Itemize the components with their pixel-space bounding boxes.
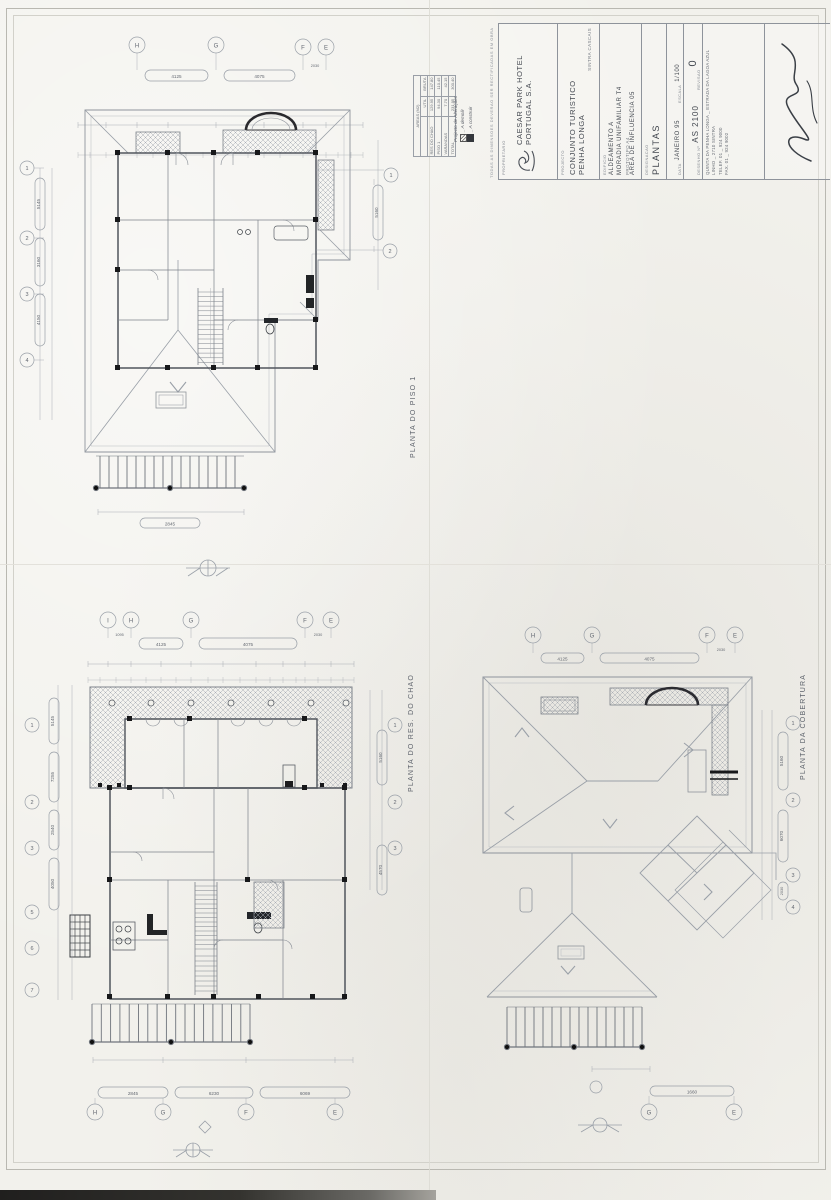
caesar-park-logo-icon [512,149,536,175]
grid-right [370,690,402,895]
grid-bubbles-top [129,37,334,70]
scan-edge-artifact [0,1190,436,1200]
staircase [198,288,223,365]
date-label: DATA [677,163,682,175]
title-block-meta: DATA JANEIRO 95 ESCALA 1/100 DESENHO Nº … [667,24,703,179]
kitchen-service-fixtures [70,912,271,957]
pergola [89,1004,252,1045]
svg-text:1: 1 [30,723,33,729]
areas-col-util: UTIL [421,97,428,117]
building-line2: MORADIA UNIFAMILIAR T4 [617,28,625,175]
svg-text:6070: 6070 [779,830,784,841]
svg-text:5: 5 [30,910,33,916]
terrace-hatch [90,687,352,788]
revision-label: REVISAO [696,69,701,90]
owner-label: PROPRIETARIO [501,28,506,175]
svg-text:E: E [733,634,737,640]
svg-text:4075: 4075 [243,642,254,647]
svg-text:7: 7 [30,988,33,994]
address-line4: FAX. 01 _ 924 9002 [724,28,730,175]
svg-text:H: H [531,634,535,640]
areas-col-bruta: BRUTA [421,76,428,97]
build-solid-icon [467,134,474,142]
svg-text:2: 2 [388,249,391,255]
table-row: RES DO CHAO 129.95 147.80 [428,76,435,157]
areas-col-spacer [421,117,428,157]
svg-text:I: I [107,619,109,625]
svg-text:H: H [135,44,139,50]
grid-bubbles-bottom [641,1096,742,1120]
owner-line1: CAESAR PARK HOTEL [515,55,524,145]
columns [107,716,347,999]
project-sub: SINTRA CASCAIS [587,28,592,175]
pergola [504,1007,644,1050]
svg-text:1: 1 [393,723,396,729]
title-block-project: PROJECTO CONJUNTO TURISTICO PENHA LONGA … [558,24,600,179]
svg-text:2: 2 [393,800,396,806]
dimension-bottom: 2845 6230 6069 [93,1057,353,1098]
building-walls [118,153,316,368]
designation-value: PLANTAS [651,28,662,175]
building-walls [110,719,345,999]
roof-details [520,750,738,912]
dimension-pills-top: 4125 4075 2030 [145,64,319,81]
svg-text:4: 4 [791,905,794,911]
svg-text:3: 3 [393,846,396,852]
dimension-bottom: 1660 [590,1066,734,1096]
svg-text:3: 3 [30,846,33,852]
grid-left [25,685,72,1000]
door-swings [148,153,294,330]
pergola [93,456,246,491]
project-line2: PENHA LONGA [577,28,586,175]
svg-text:2030: 2030 [780,887,784,895]
svg-text:5145: 5145 [50,715,55,726]
svg-text:F: F [301,46,305,52]
patio-hatch [254,882,284,928]
drawing-number-label: DESENHO Nº [696,146,701,175]
svg-text:4075: 4075 [254,74,265,79]
svg-text:2030: 2030 [717,648,725,652]
svg-text:5145: 5145 [36,198,41,209]
svg-text:G: G [590,634,595,640]
title-block-designation: DESIGNACAO PLANTAS [642,24,667,179]
title-block-address: QUINTA DA PENHA LONGA _ ESTRADA DA LAGOA… [703,24,765,179]
floor-plan-res-do-chao: I H G F E 1095 4125 4075 2030 [18,590,428,1165]
plan-title-cobertura: PLANTA DA COBERTURA [800,674,807,780]
date-value: JANEIRO 95 [675,120,683,160]
title-block-signature [765,24,830,179]
demolish-hatch-icon [460,134,467,142]
designation-label: DESIGNACAO [644,28,649,175]
svg-text:G: G [189,619,194,625]
building-line4: AREA DE INFLUENCIA 05 [630,28,638,175]
svg-text:H: H [93,1111,97,1117]
alterations-title: Projecto de Alterações [452,84,459,142]
svg-text:E: E [333,1111,337,1117]
building-label: EDIFICIO [602,28,607,175]
svg-text:4: 4 [25,358,28,364]
svg-text:3160: 3160 [36,256,41,267]
svg-text:F: F [705,634,709,640]
disclaimer-note: TODAS AS DIMENSOES DEVERAO SER RECTIFICA… [489,27,494,178]
svg-text:2845: 2845 [165,522,176,527]
building-line1: ALDEAMENTO A [609,28,617,175]
project-line1: CONJUNTO TURISTICO [568,28,577,175]
svg-text:G: G [214,44,219,50]
svg-text:E: E [324,46,328,52]
svg-text:7255: 7255 [50,771,55,782]
datum-markers [173,1121,213,1157]
owner-line2: PORTUGAL S.A. [524,55,533,145]
legend-build: _ A construir [468,107,473,132]
grid-bubbles-top [100,612,339,638]
svg-text:1: 1 [25,166,28,172]
plan-title-piso1: PLANTA DO PISO 1 [410,376,417,458]
roof-plan-cobertura: H G F E 4125 4075 2030 [460,620,820,1140]
title-block-owner: PROPRIETARIO CAESAR PARK HOTEL PORTUGAL … [498,24,558,179]
svg-text:4570: 4570 [378,864,383,875]
floor-plan-piso1: H G F E 4125 4075 2030 1 2 3 4 [18,20,418,580]
svg-text:F: F [244,1111,248,1117]
scale-label: ESCALA [677,85,682,103]
svg-text:F: F [303,619,307,625]
chimney [156,392,186,408]
dimension-pills-top: 1095 4125 4075 2030 [115,633,322,649]
svg-text:1: 1 [791,721,794,727]
fold-crease-vertical [429,0,430,1200]
slope-arrows [505,728,712,974]
revision-value: 0 [687,60,701,67]
grid-bubbles-bottom [87,1098,343,1120]
svg-text:5160: 5160 [779,755,784,766]
title-block-building: EDIFICIO ALDEAMENTO A MORADIA UNIFAMILIA… [600,24,642,179]
signature [767,28,825,175]
scanned-drawing-sheet: H G F E 4125 4075 2030 1 2 3 4 [0,0,831,1200]
svg-text:6: 6 [30,946,33,952]
svg-text:2540: 2540 [50,824,55,835]
balcony-hatch-areas [136,130,334,230]
svg-text:2845: 2845 [128,1091,139,1096]
svg-text:4150: 4150 [36,314,41,325]
svg-text:G: G [647,1111,652,1117]
plan-title-res-do-chao: PLANTA DO RES. DO CHAO [408,674,415,792]
svg-text:4125: 4125 [171,74,182,79]
svg-text:1660: 1660 [687,1090,698,1095]
columns [115,150,318,370]
roof-lower-pyramid [487,853,657,997]
svg-text:5160: 5160 [378,752,383,763]
svg-text:1: 1 [389,173,392,179]
svg-text:2: 2 [791,798,794,804]
grid-bubbles-top [525,627,743,653]
svg-text:4125: 4125 [156,642,167,647]
svg-text:2: 2 [30,800,33,806]
table-row: VARANDAS 7.70 42.15 [442,76,449,157]
scale-value: 1/100 [675,64,683,82]
title-block: PROPRIETARIO CAESAR PARK HOTEL PORTUGAL … [498,23,830,180]
svg-text:6069: 6069 [300,1091,311,1096]
svg-text:E: E [732,1111,736,1117]
svg-text:4075: 4075 [644,657,655,662]
svg-text:G: G [161,1111,166,1117]
project-label: PROJECTO [560,28,565,175]
svg-text:2030: 2030 [314,633,322,637]
svg-text:2030: 2030 [311,64,319,68]
roof-wing [640,816,771,938]
section-marker [186,560,230,576]
dimension-pills-top: 4125 4075 2030 [541,648,725,663]
datum-marker [578,1118,622,1132]
dimension-chain-top [88,661,354,683]
svg-text:3: 3 [791,873,794,879]
areas-table-title: AREAS (M2) [414,76,421,157]
dimension-bottom: 2845 [98,509,244,528]
svg-text:2: 2 [25,236,28,242]
svg-text:H: H [129,619,133,625]
bathroom-fixtures [238,226,315,334]
svg-text:3: 3 [25,292,28,298]
svg-text:E: E [329,619,333,625]
table-row: PISO 1 94.30 110.45 [435,76,442,157]
roof-hatch-areas [541,688,728,795]
svg-text:5160: 5160 [374,207,379,218]
svg-text:6230: 6230 [209,1091,220,1096]
svg-text:4125: 4125 [557,657,568,662]
legend-demolish: _ A demolir [460,109,465,132]
svg-text:4050: 4050 [50,878,55,889]
entrance-arch [246,113,296,130]
drawing-number-value: AS 2100 [691,105,701,143]
svg-text:1095: 1095 [115,633,123,637]
